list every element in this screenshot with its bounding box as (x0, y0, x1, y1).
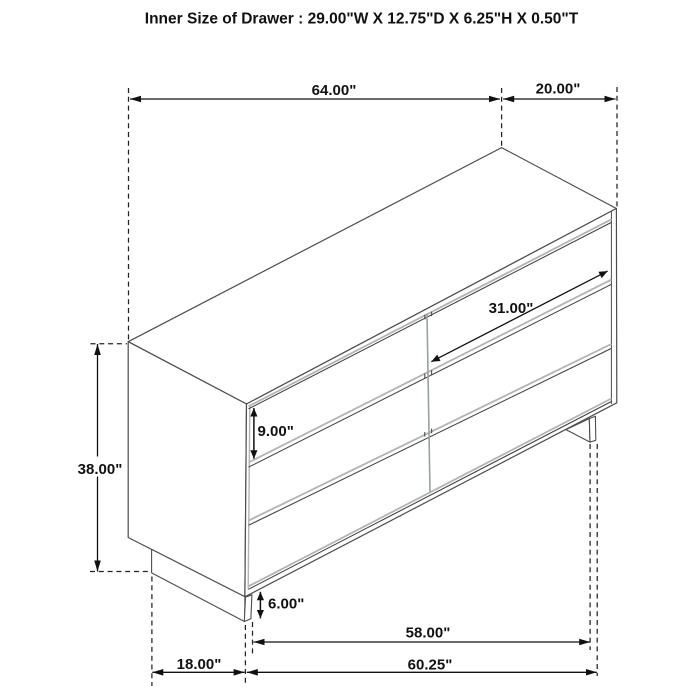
svg-text:Inner Size of Drawer : 29.00"W: Inner Size of Drawer : 29.00"W X 12.75"D… (145, 11, 579, 28)
svg-text:64.00": 64.00" (312, 82, 357, 99)
svg-text:20.00": 20.00" (536, 81, 581, 98)
svg-text:58.00": 58.00" (406, 624, 451, 641)
svg-text:31.00": 31.00" (489, 300, 534, 317)
svg-text:18.00": 18.00" (177, 656, 222, 673)
svg-text:9.00": 9.00" (258, 423, 294, 440)
svg-text:38.00": 38.00" (78, 461, 123, 478)
svg-text:6.00": 6.00" (268, 595, 304, 612)
svg-text:60.25": 60.25" (408, 656, 453, 673)
